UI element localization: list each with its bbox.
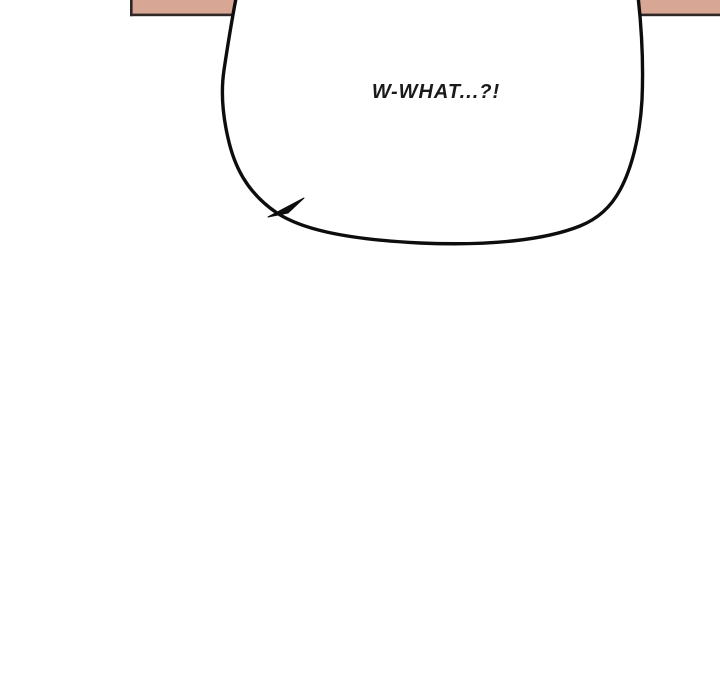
comic-panel: W-WHAT...?!: [0, 0, 720, 700]
speech-bubble-body: [222, 0, 642, 244]
panel-artwork: [0, 0, 720, 700]
speech-bubble-text: W-WHAT...?!: [256, 80, 616, 104]
